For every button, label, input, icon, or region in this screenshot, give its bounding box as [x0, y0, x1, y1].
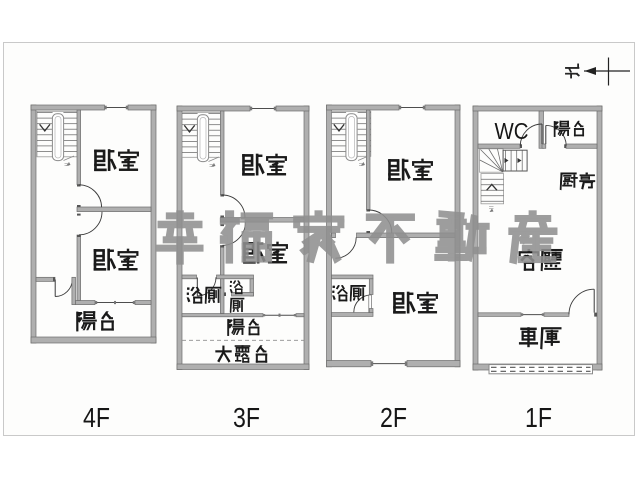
svg-text:4F: 4F [83, 402, 110, 433]
svg-text:WC: WC [495, 118, 529, 144]
svg-text:1F: 1F [525, 402, 552, 433]
svg-text:3F: 3F [233, 402, 260, 433]
svg-text:2F: 2F [380, 402, 407, 433]
